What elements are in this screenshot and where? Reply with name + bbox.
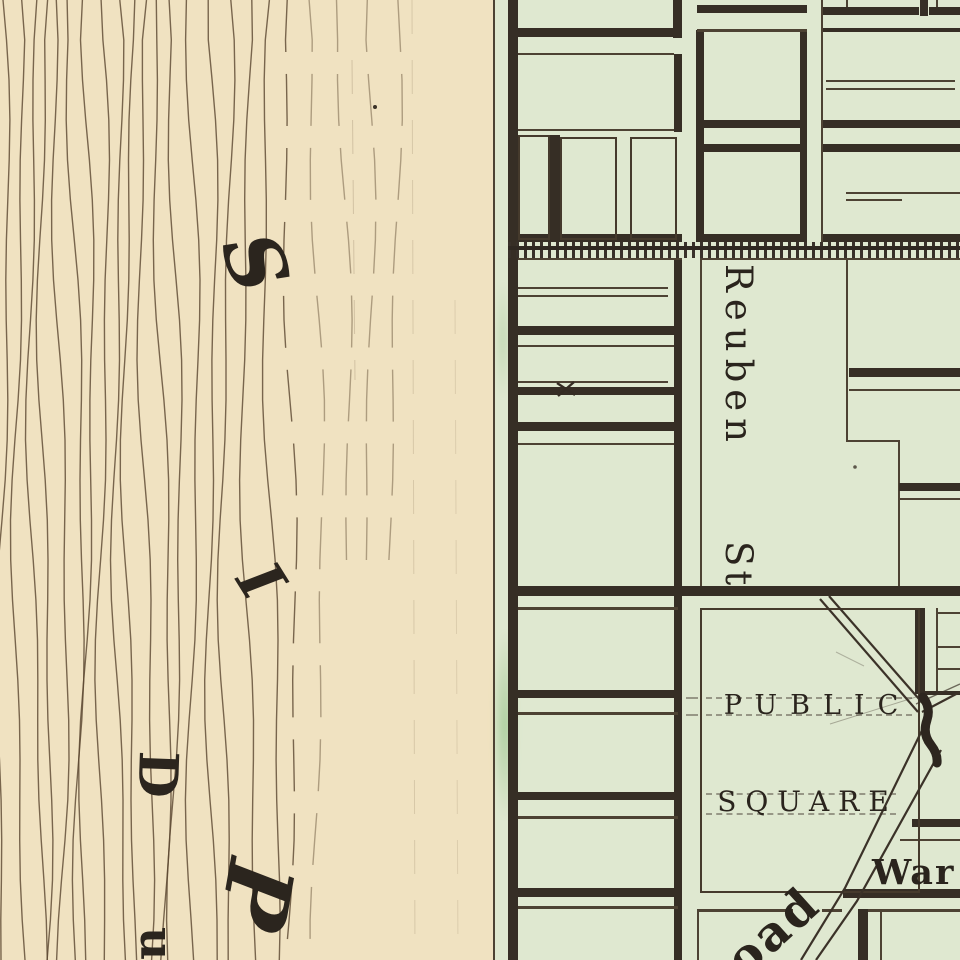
road-junction-blob: [923, 697, 937, 763]
street-label-warren: War: [872, 855, 955, 890]
street-label-reuben-suffix: St: [720, 541, 757, 589]
street-label-reuben: Reuben: [720, 264, 757, 449]
ink-speck: [373, 105, 377, 109]
surveyor-x-mark: [557, 382, 575, 396]
ink-speck: [853, 465, 857, 469]
public-square-label-line1: PUBLIC: [702, 692, 920, 719]
diagonal-road-lines: [801, 596, 960, 960]
public-square-label-line2: SQUARE: [696, 788, 910, 816]
historic-city-map: S I P D u Reuben St PUBLIC SQUARE War: [0, 0, 960, 960]
